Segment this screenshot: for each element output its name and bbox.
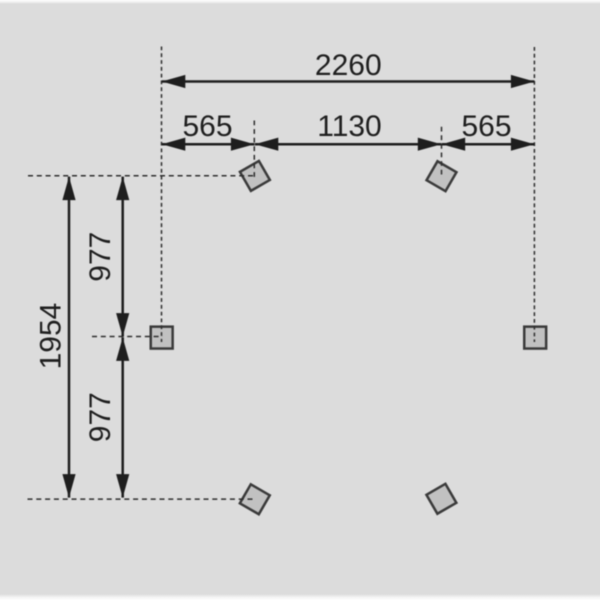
svg-text:977: 977 bbox=[84, 392, 117, 442]
svg-text:565: 565 bbox=[461, 110, 511, 143]
svg-text:977: 977 bbox=[84, 232, 117, 282]
svg-text:565: 565 bbox=[182, 110, 232, 143]
svg-text:2260: 2260 bbox=[315, 49, 382, 82]
svg-text:1954: 1954 bbox=[34, 303, 67, 370]
svg-text:1130: 1130 bbox=[317, 110, 382, 143]
